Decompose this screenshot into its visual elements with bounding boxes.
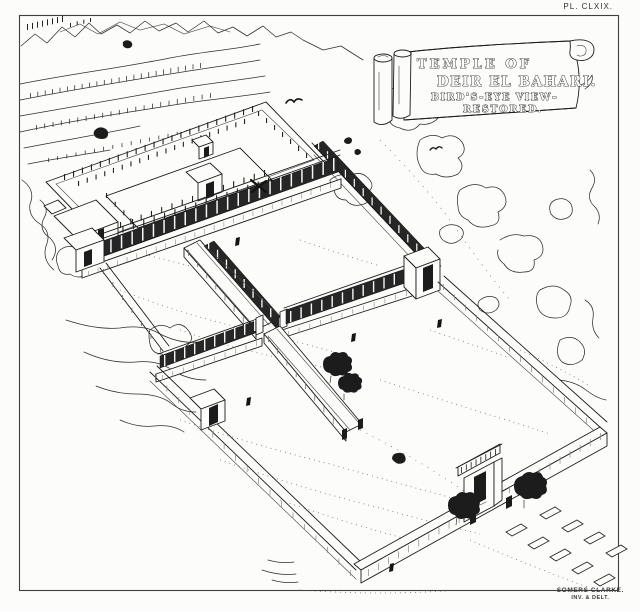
wall-hatch: [103, 269, 161, 352]
ramp-newel: [256, 315, 263, 335]
scroll-title-line3: BIRD'S-EYE VIEW–: [431, 92, 558, 103]
scroll-title-line2: DEIR EL BAHARI.: [437, 74, 597, 90]
scroll-roll: [393, 52, 411, 118]
middle-colonnade-left: [156, 318, 262, 382]
engraving: TEMPLE OF DEIR EL BAHARI. BIRD'S-EYE VIE…: [0, 0, 640, 612]
bird-icon: [286, 99, 302, 103]
cliff-top-ruins: [70, 18, 91, 27]
plate-page: PL. CLXIX.: [0, 0, 640, 612]
rock-shadow: [94, 127, 109, 139]
middle-colonnade-right: [282, 264, 412, 338]
signature-name: SOMERS CLARKE.: [557, 587, 624, 594]
temple: [44, 102, 627, 586]
scroll-title-line1: TEMPLE OF: [417, 57, 532, 72]
scroll-title-line4: RESTORED.: [463, 104, 543, 115]
bird-icon: [430, 147, 442, 150]
cliff-top-ruins: [27, 16, 63, 30]
scroll-banner: TEMPLE OF DEIR EL BAHARI. BIRD'S-EYE VIE…: [374, 40, 597, 125]
strata-hatch: [36, 93, 211, 130]
corner-scrub: [262, 560, 298, 583]
strata-hatch: [30, 63, 201, 98]
wall-hatch: [443, 284, 598, 434]
avenue-of-sphinx-bases: [506, 507, 627, 586]
right-rocky-slope: [330, 84, 606, 400]
signature-credit: INV. & DELT.: [557, 595, 624, 601]
terrace-gate-block: [404, 247, 440, 299]
scroll-roll: [374, 58, 392, 125]
trees: [323, 352, 547, 525]
artist-signature: SOMERS CLARKE. INV. & DELT.: [557, 587, 624, 601]
middle-terrace-left-wall: [100, 263, 169, 352]
lower-court-enclosure: [150, 276, 607, 583]
rock-shadow: [123, 40, 132, 48]
